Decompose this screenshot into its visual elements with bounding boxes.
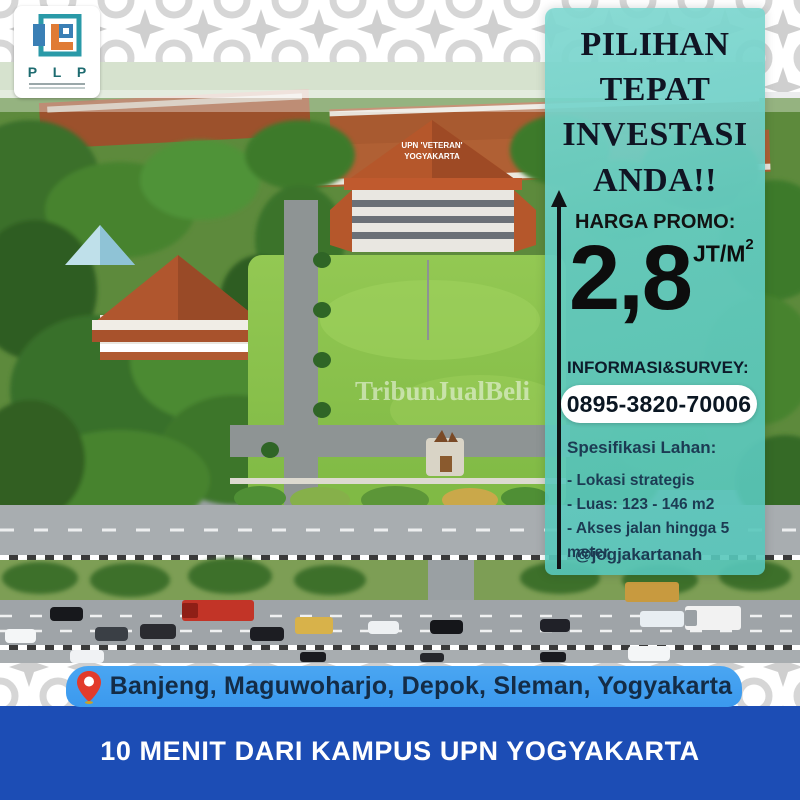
promo-panel: PILIHAN TEPAT INVESTASI ANDA!! HARGA PRO… xyxy=(545,8,765,575)
spec-title: Spesifikasi Lahan: xyxy=(567,438,716,458)
price-unit: JT/M2 xyxy=(693,240,754,268)
map-pin-icon xyxy=(76,670,102,704)
watermark-text: TribunJualBeli xyxy=(355,376,531,406)
plp-logo-tagline xyxy=(29,83,85,90)
bottom-tagline-bar: 10 MENIT DARI KAMPUS UPN YOGYAKARTA xyxy=(0,706,800,800)
price-value: 2,8 xyxy=(569,226,691,331)
headline-line-2: TEPAT xyxy=(545,67,765,112)
location-text: Banjeng, Maguwoharjo, Depok, Sleman, Yog… xyxy=(110,672,733,701)
price-unit-sup: 2 xyxy=(745,236,753,253)
building-roof-text-line1: UPN 'VETERAN' xyxy=(401,141,462,150)
spec-item-1: - Lokasi strategis xyxy=(567,469,765,493)
headline-line-4: ANDA!! xyxy=(545,158,765,203)
bottom-tagline-text: 10 MENIT DARI KAMPUS UPN YOGYAKARTA xyxy=(100,736,700,767)
plp-logo-icon xyxy=(31,14,83,62)
location-bar: Banjeng, Maguwoharjo, Depok, Sleman, Yog… xyxy=(66,666,742,707)
spec-item-2: - Luas: 123 - 146 m2 xyxy=(567,493,765,517)
price-unit-text: JT/M xyxy=(693,241,745,267)
poster-canvas: UPN 'VETERAN' YOGYAKARTA xyxy=(0,0,800,800)
plp-logo-text: P L P xyxy=(22,64,93,80)
headline: PILIHAN TEPAT INVESTASI ANDA!! xyxy=(545,22,765,203)
headline-line-3: INVESTASI xyxy=(545,112,765,157)
social-handle: @jogjakartanah xyxy=(575,545,702,565)
info-survey-label: INFORMASI&SURVEY: xyxy=(567,358,749,378)
up-arrow-icon xyxy=(551,190,567,572)
phone-pill: 0895-3820-70006 xyxy=(561,385,757,423)
headline-line-1: PILIHAN xyxy=(545,22,765,67)
building-roof-text-line2: YOGYAKARTA xyxy=(404,152,460,161)
plp-logo-card: P L P xyxy=(14,6,100,98)
phone-number: 0895-3820-70006 xyxy=(567,391,752,418)
